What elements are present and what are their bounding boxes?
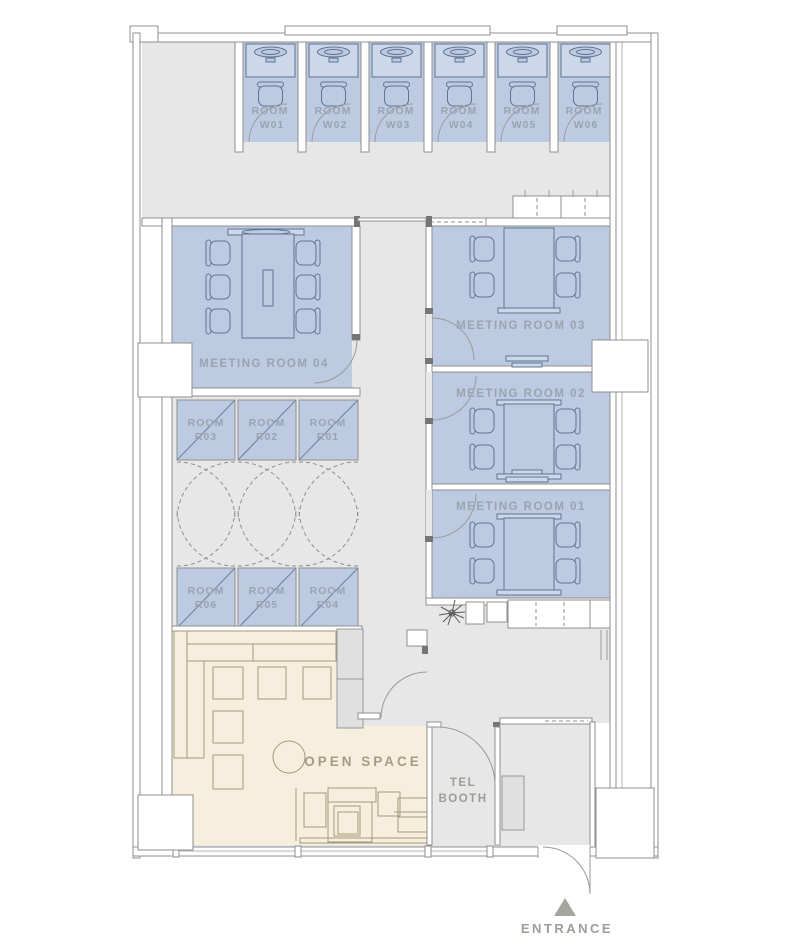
chair-icon — [556, 408, 580, 434]
entrance-arrow-icon — [554, 898, 576, 916]
room-label: ROOM — [188, 417, 225, 429]
display-icon — [512, 470, 542, 474]
chair-icon — [470, 444, 494, 470]
pillar — [138, 343, 192, 397]
table-icon — [504, 404, 554, 476]
chair-icon — [296, 240, 320, 266]
desk-icon — [372, 44, 421, 77]
chair-icon — [470, 408, 494, 434]
chair-icon — [556, 558, 580, 584]
floor-plan-page: ROOM W01 ROOM W02 ROOM W03 ROOM W04 ROOM… — [0, 0, 795, 948]
ottoman-icon — [258, 667, 286, 699]
room-label: ROOM — [252, 105, 289, 117]
closet-icon — [502, 776, 524, 830]
room-label: ROOM — [249, 417, 286, 429]
meeting-room-03-label: MEETING ROOM 03 — [456, 320, 586, 332]
desk-icon — [435, 44, 484, 77]
pillar — [592, 340, 648, 392]
sofa-icon — [174, 631, 336, 644]
room-label: ROOM — [378, 105, 415, 117]
room-label: W01 — [260, 119, 285, 131]
meeting-room-04: MEETING ROOM 04 — [170, 226, 360, 388]
chair-icon — [321, 82, 347, 106]
chair-icon — [296, 274, 320, 300]
chair-icon — [510, 82, 536, 106]
room-label: R04 — [317, 599, 339, 611]
chair-icon — [206, 274, 230, 300]
meeting-room-02-label: MEETING ROOM 02 — [456, 388, 586, 400]
meeting-room-04-label: MEETING ROOM 04 — [199, 358, 329, 370]
pillar — [596, 788, 654, 858]
room-label: ROOM — [566, 105, 603, 117]
ottoman-icon — [213, 711, 243, 743]
chair-icon — [556, 272, 580, 298]
ottoman-icon — [213, 755, 243, 789]
room-label: ROOM — [441, 105, 478, 117]
chair-icon — [556, 236, 580, 262]
chair-icon — [206, 308, 230, 334]
chair-icon — [556, 444, 580, 470]
meeting-room-01-label: MEETING ROOM 01 — [456, 501, 586, 513]
chair-icon — [573, 82, 599, 106]
room-label: ROOM — [188, 585, 225, 597]
chair-icon — [556, 522, 580, 548]
chair-icon — [296, 308, 320, 334]
chair-icon — [470, 236, 494, 262]
open-space-label: OPEN SPACE — [304, 754, 422, 769]
room-label: W06 — [574, 119, 599, 131]
room-label: R05 — [256, 599, 278, 611]
entrance-label: ENTRANCE — [521, 921, 613, 936]
meeting-room-01: MEETING ROOM 01 — [432, 490, 610, 598]
room-label: ROOM — [310, 417, 347, 429]
chair-icon — [258, 82, 284, 106]
room-label: R01 — [317, 431, 339, 443]
room-label: W02 — [323, 119, 348, 131]
room-label: W03 — [386, 119, 411, 131]
room-label: W04 — [449, 119, 474, 131]
desk-icon — [498, 44, 547, 77]
chair-icon — [384, 82, 410, 106]
chair-icon — [206, 240, 230, 266]
room-label: R02 — [256, 431, 278, 443]
meeting-room-02: MEETING ROOM 02 — [432, 372, 610, 484]
ottoman-icon — [213, 667, 243, 699]
desk-icon — [561, 44, 610, 77]
room-label: ROOM — [315, 105, 352, 117]
meeting-room-03: MEETING ROOM 03 — [432, 226, 610, 366]
table-icon — [504, 518, 554, 592]
table-icon — [504, 228, 554, 312]
desk-icon — [246, 44, 295, 77]
chair-icon — [447, 82, 473, 106]
display-icon — [506, 477, 548, 482]
pillar — [138, 795, 193, 850]
floor-plan: ROOM W01 ROOM W02 ROOM W03 ROOM W04 ROOM… — [0, 0, 795, 948]
ottoman-icon — [303, 667, 331, 699]
chair-icon — [470, 558, 494, 584]
display-icon — [506, 356, 548, 361]
sofa-icon — [174, 631, 187, 758]
room-label: ROOM — [310, 585, 347, 597]
room-label: R03 — [195, 431, 217, 443]
entrance: ENTRANCE — [521, 845, 613, 936]
room-label: ROOM — [249, 585, 286, 597]
room-label: W05 — [512, 119, 537, 131]
room-label: R06 — [195, 599, 217, 611]
desk-icon — [309, 44, 358, 77]
room-label: ROOM — [504, 105, 541, 117]
display-icon — [512, 363, 542, 367]
table-icon — [242, 234, 294, 338]
chair-icon — [470, 522, 494, 548]
tel-booth-label: TEL — [450, 777, 476, 789]
work-rooms: ROOM W01 ROOM W02 ROOM W03 ROOM W04 ROOM… — [235, 42, 610, 152]
chair-icon — [470, 272, 494, 298]
tel-booth-label: BOOTH — [438, 793, 487, 805]
